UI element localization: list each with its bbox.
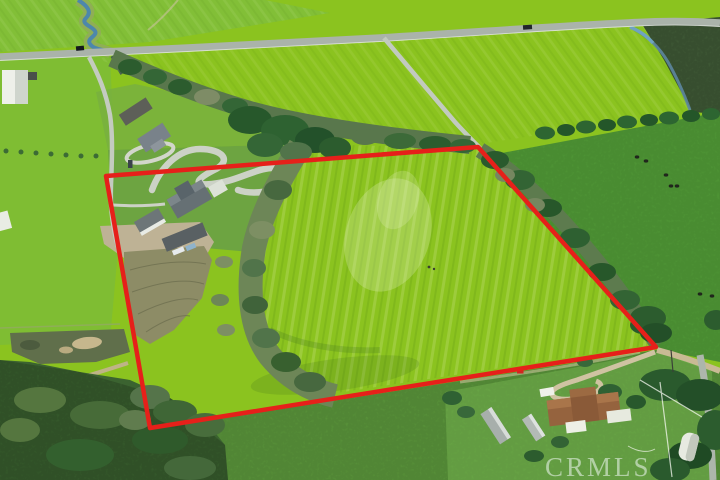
- aerial-photo: CRMLS: [0, 0, 720, 480]
- scrub: [294, 372, 326, 392]
- cow: [644, 159, 649, 162]
- tree: [242, 296, 268, 314]
- barn-roof-shade: [15, 70, 28, 104]
- animal-in-parcel: [433, 268, 435, 270]
- bush: [34, 151, 39, 156]
- tree: [576, 121, 596, 134]
- tree: [659, 112, 679, 125]
- tree: [702, 108, 720, 120]
- cow: [675, 184, 680, 187]
- cow: [698, 292, 703, 295]
- shrub: [457, 406, 475, 418]
- tree: [598, 119, 616, 131]
- tree: [557, 124, 575, 136]
- tree: [46, 439, 114, 471]
- bush: [4, 149, 9, 154]
- tree: [247, 133, 283, 157]
- shrub: [442, 391, 462, 405]
- tree: [271, 352, 301, 372]
- shrub: [524, 450, 544, 462]
- shrub: [626, 395, 646, 409]
- dark-shed: [28, 72, 37, 80]
- aerial-photo-canvas: CRMLS: [0, 0, 720, 480]
- tree: [132, 426, 188, 454]
- pond-sandbar-2: [59, 347, 73, 354]
- car-on-country-road: [128, 160, 133, 168]
- cow: [635, 155, 640, 158]
- bare-tree: [249, 221, 275, 239]
- tree: [168, 79, 192, 95]
- scrub: [264, 180, 292, 200]
- scrub: [242, 259, 266, 277]
- scrub: [0, 418, 40, 442]
- scrub: [211, 294, 229, 306]
- tree: [617, 116, 637, 129]
- tree: [143, 69, 167, 85]
- car-at-bridge: [76, 46, 84, 51]
- bare-tree: [215, 256, 233, 268]
- cow: [669, 184, 674, 187]
- bush: [94, 154, 99, 159]
- bush: [64, 153, 69, 158]
- cow: [710, 294, 715, 297]
- bare-tree: [194, 89, 220, 105]
- shrub: [551, 436, 569, 448]
- scrub: [252, 328, 280, 348]
- scrub: [164, 456, 216, 480]
- scrub: [14, 387, 66, 413]
- bush: [19, 150, 24, 155]
- tree: [118, 59, 142, 75]
- bush: [79, 154, 84, 159]
- tree: [384, 133, 416, 149]
- car-on-highway: [523, 25, 532, 30]
- pond-deep-spot: [20, 340, 40, 350]
- watermark-text: CRMLS: [545, 452, 652, 480]
- tree: [640, 114, 658, 126]
- farm-driveway: [113, 204, 165, 206]
- tree: [682, 110, 700, 122]
- animal-in-parcel: [428, 266, 431, 269]
- bare-tree: [217, 324, 235, 336]
- cow: [664, 173, 669, 176]
- scrub: [351, 129, 379, 145]
- tree: [535, 127, 555, 140]
- bush: [49, 152, 54, 157]
